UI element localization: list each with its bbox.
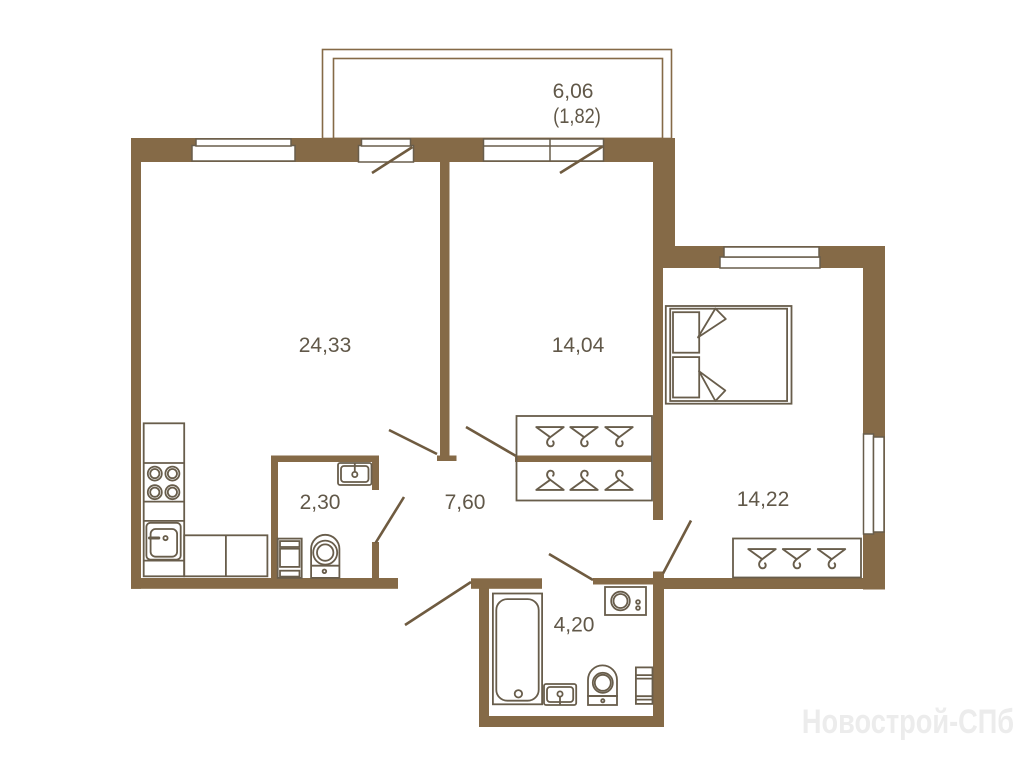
svg-text:7,60: 7,60 bbox=[445, 491, 486, 514]
svg-text:6,06: 6,06 bbox=[553, 80, 594, 103]
svg-text:Новострой-СПб: Новострой-СПб bbox=[802, 702, 1014, 741]
svg-text:14,04: 14,04 bbox=[552, 334, 605, 357]
svg-text:4,20: 4,20 bbox=[554, 614, 595, 637]
svg-text:14,22: 14,22 bbox=[737, 488, 790, 511]
svg-text:(1,82): (1,82) bbox=[553, 105, 601, 128]
svg-text:2,30: 2,30 bbox=[300, 491, 341, 514]
svg-text:24,33: 24,33 bbox=[299, 334, 352, 357]
